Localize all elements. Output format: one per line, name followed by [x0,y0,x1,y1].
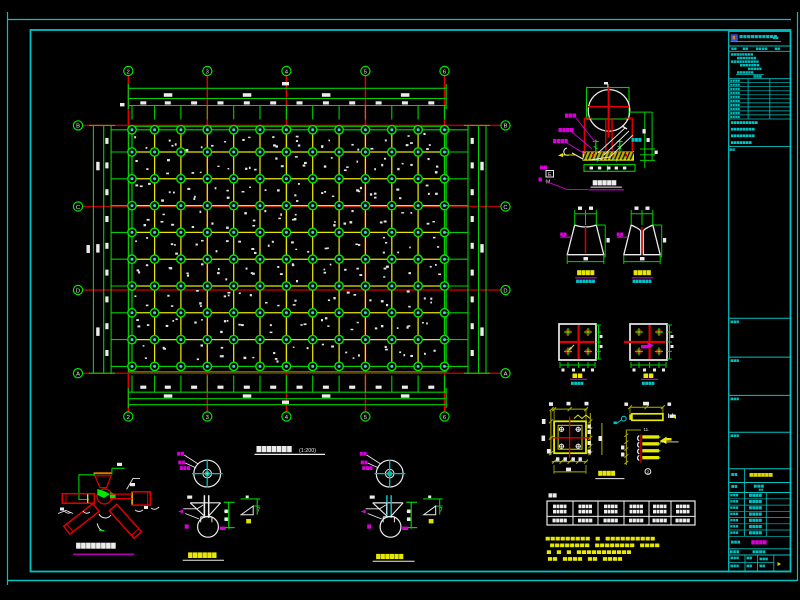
svg-text:C: C [503,205,507,211]
svg-text:2: 2 [647,469,650,474]
svg-text:A: A [504,372,508,378]
svg-text:6: 6 [443,69,446,75]
svg-text:2: 2 [127,415,130,421]
svg-text:3: 3 [206,415,209,421]
svg-text:6: 6 [443,415,446,421]
svg-text:5: 5 [364,415,367,421]
svg-text:C: C [76,205,80,211]
svg-text:B: B [504,124,508,130]
svg-text:7: 7 [257,508,260,514]
svg-text:11.: 11. [644,427,650,432]
svg-text:(1:200): (1:200) [299,448,316,454]
svg-text:7: 7 [440,508,443,514]
svg-text:B: B [76,124,80,130]
svg-text:A: A [76,372,80,378]
svg-text:3: 3 [206,69,209,75]
svg-text:4: 4 [285,415,289,421]
svg-text:D: D [503,288,507,294]
svg-text:E: E [548,172,552,178]
svg-text:D: D [76,288,80,294]
svg-text:2: 2 [127,69,130,75]
svg-text:4: 4 [285,69,289,75]
svg-text:5: 5 [364,69,367,75]
